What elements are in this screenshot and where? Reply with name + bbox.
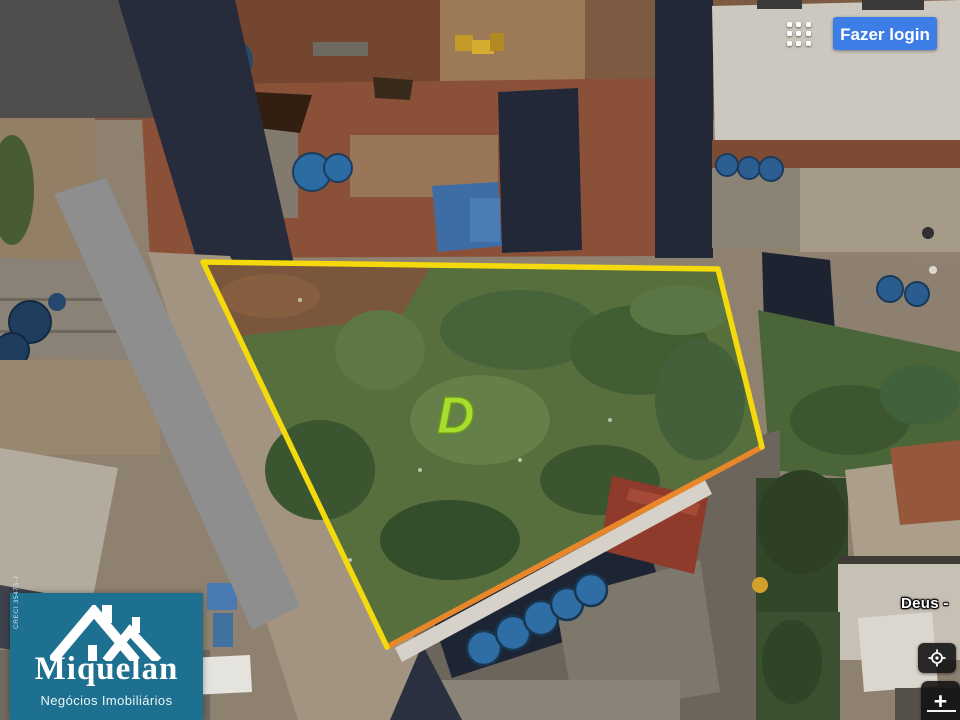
my-location-icon	[928, 649, 946, 667]
zoom-divider	[927, 710, 956, 712]
creci-registration: CRECI 35473-J	[13, 576, 20, 629]
login-button[interactable]: Fazer login	[833, 17, 937, 50]
agency-tagline: Negócios Imobiliários	[10, 693, 203, 708]
apps-grid-icon[interactable]	[787, 22, 812, 47]
my-location-button[interactable]	[918, 643, 956, 673]
agency-watermark: CRECI 35473-J Miquelan Negócios Imobiliá…	[10, 593, 203, 720]
agency-name: Miquelan	[10, 651, 203, 688]
map-viewport[interactable]: D Fazer login Deus - + CRECI 35473-J	[0, 0, 960, 720]
plot-label: D	[437, 387, 475, 445]
street-label: Deus -	[901, 595, 949, 612]
zoom-in-button[interactable]: +	[921, 681, 960, 720]
